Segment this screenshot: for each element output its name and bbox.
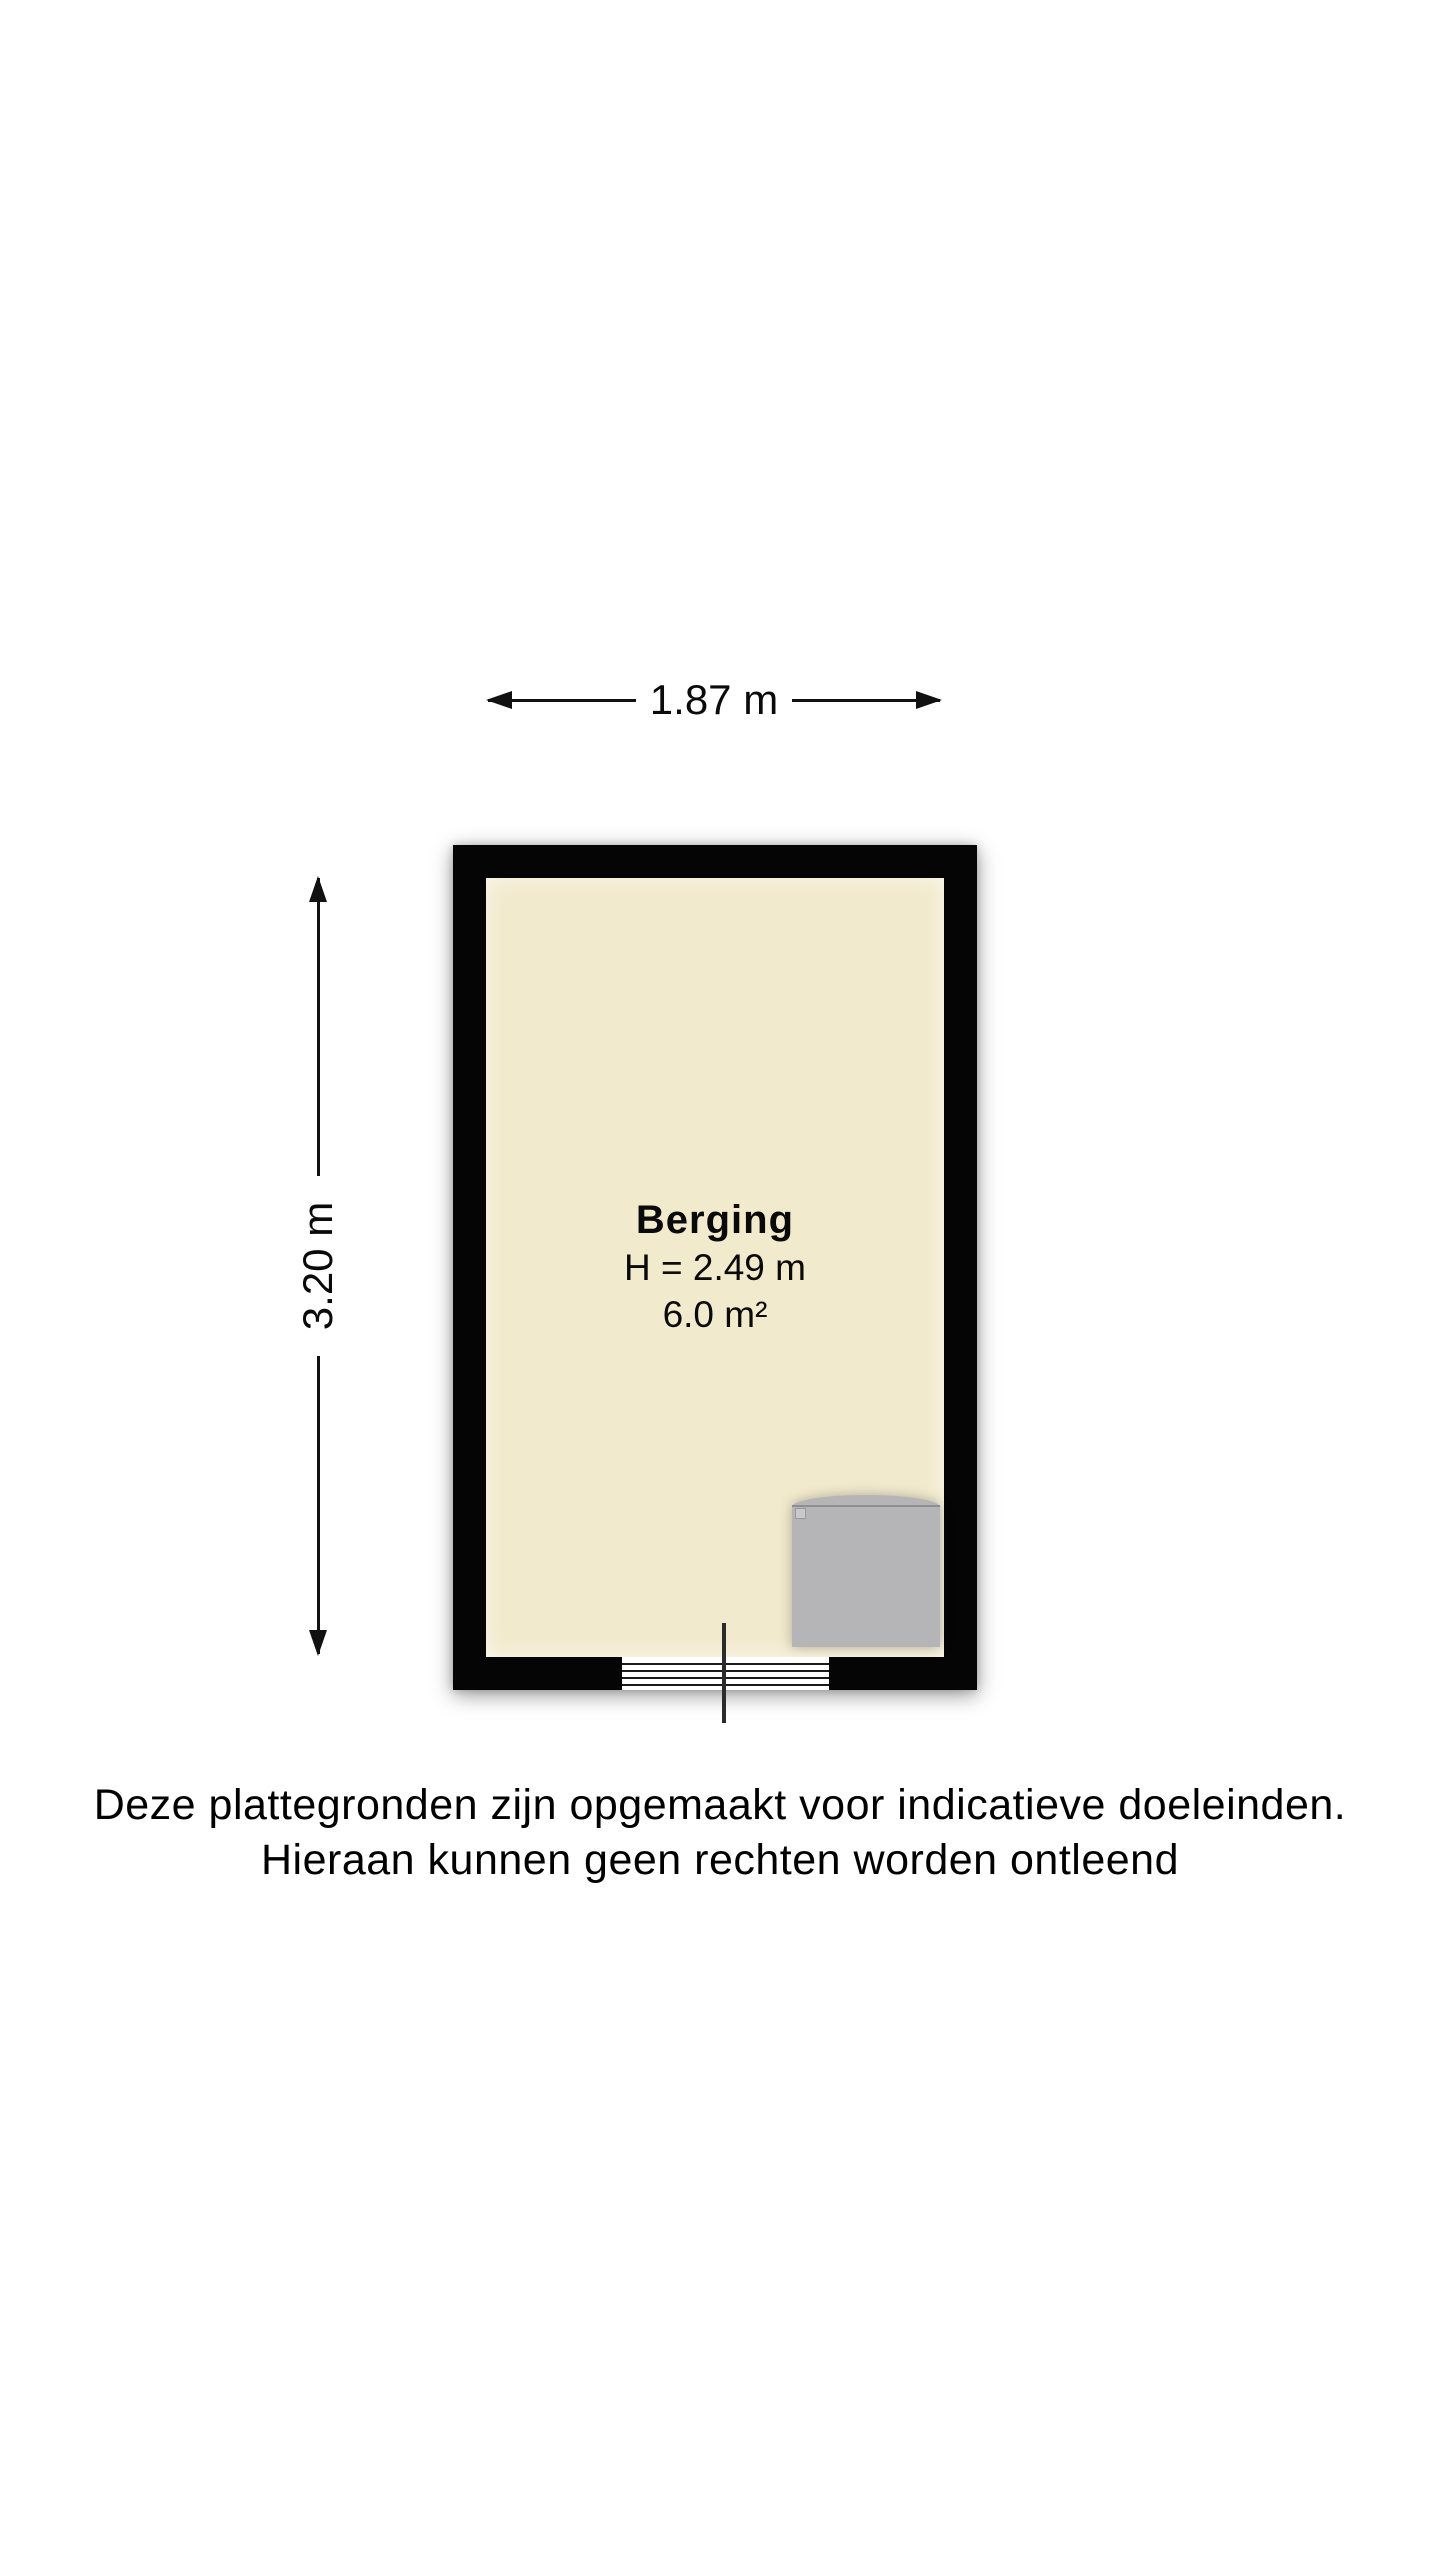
height-dimension: 3.20 m <box>296 878 340 1654</box>
door-swing-line <box>722 1623 726 1723</box>
floorplan-page: 1.87 m 3.20 m Berging H = 2.49 m 6.0 m² <box>0 0 1440 2560</box>
dimension-arrow-up-icon <box>317 878 320 1176</box>
dimension-arrow-right-icon <box>792 699 940 702</box>
room-name: Berging <box>624 1197 806 1244</box>
width-dimension-label: 1.87 m <box>650 676 778 724</box>
width-dimension: 1.87 m <box>488 676 940 724</box>
dimension-arrow-left-icon <box>488 699 636 702</box>
disclaimer-line-1: Deze plattegronden zijn opgemaakt voor i… <box>0 1778 1440 1833</box>
height-dimension-label-box: 3.20 m <box>296 1176 340 1356</box>
height-dimension-label: 3.20 m <box>294 1202 342 1330</box>
disclaimer-line-2: Hieraan kunnen geen rechten worden ontle… <box>0 1833 1440 1888</box>
disclaimer: Deze plattegronden zijn opgemaakt voor i… <box>0 1778 1440 1888</box>
appliance-hinge <box>795 1508 806 1519</box>
room-area: 6.0 m² <box>624 1291 806 1338</box>
room-label: Berging H = 2.49 m 6.0 m² <box>624 1197 806 1338</box>
floor-plan: Berging H = 2.49 m 6.0 m² <box>453 845 977 1690</box>
appliance-lid-line <box>792 1505 940 1507</box>
room-ceiling-height: H = 2.49 m <box>624 1244 806 1291</box>
appliance-block <box>792 1495 940 1647</box>
dimension-arrow-down-icon <box>317 1356 320 1654</box>
